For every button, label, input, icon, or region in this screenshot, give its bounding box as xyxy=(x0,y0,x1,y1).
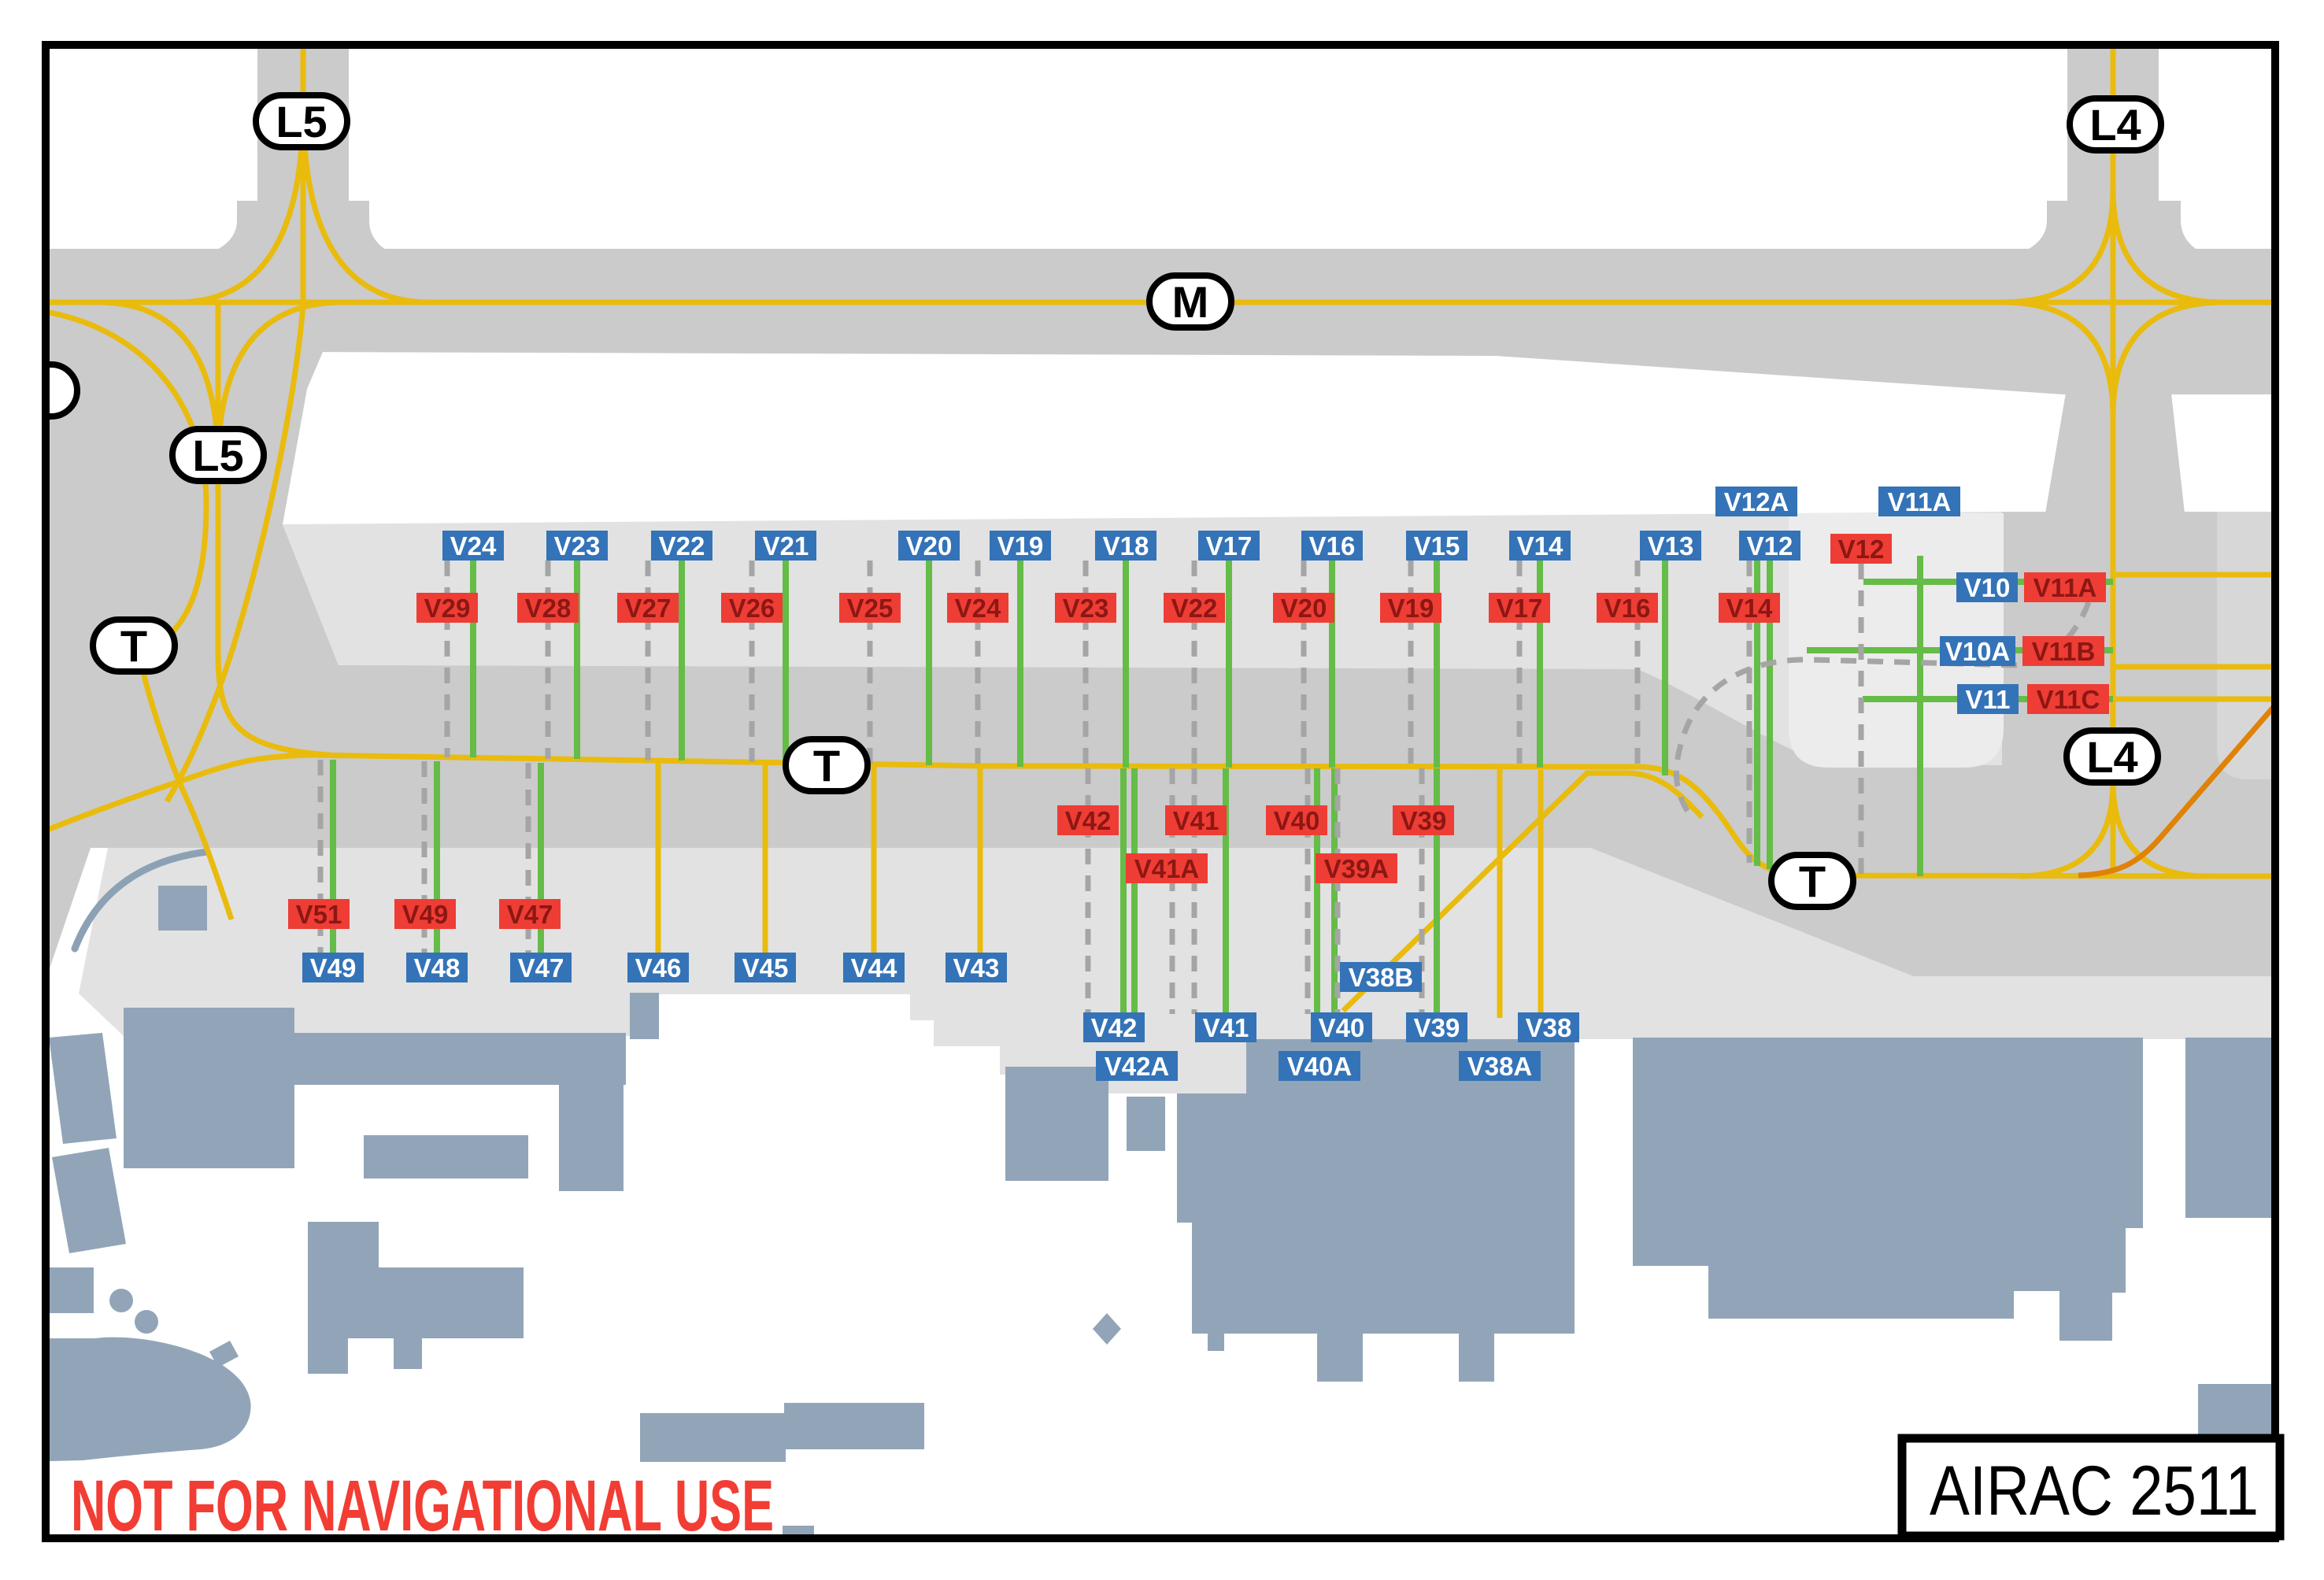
svg-text:V10A: V10A xyxy=(1945,637,2011,666)
svg-text:V13: V13 xyxy=(1648,531,1694,561)
svg-text:V28: V28 xyxy=(525,594,572,623)
svg-text:M: M xyxy=(1172,277,1209,327)
svg-text:V42: V42 xyxy=(1065,806,1112,835)
svg-text:V17: V17 xyxy=(1206,531,1253,561)
svg-text:V11: V11 xyxy=(1966,685,2011,714)
svg-text:V22: V22 xyxy=(659,531,705,561)
svg-text:V24: V24 xyxy=(955,594,1001,623)
svg-text:T: T xyxy=(1799,857,1826,906)
svg-text:V40A: V40A xyxy=(1287,1052,1353,1081)
svg-text:V11C: V11C xyxy=(2037,685,2100,714)
svg-text:V12: V12 xyxy=(1747,531,1793,561)
svg-text:V12A: V12A xyxy=(1724,487,1789,516)
svg-text:V49: V49 xyxy=(402,900,449,929)
svg-text:V43: V43 xyxy=(953,953,1000,982)
svg-text:NOT FOR NAVIGATIONAL USE: NOT FOR NAVIGATIONAL USE xyxy=(71,1466,774,1546)
svg-text:V15: V15 xyxy=(1414,531,1460,561)
svg-text:V16: V16 xyxy=(1604,594,1651,623)
svg-text:V23: V23 xyxy=(554,531,601,561)
svg-text:V39: V39 xyxy=(1401,806,1447,835)
svg-text:V12: V12 xyxy=(1838,535,1885,564)
svg-text:V26: V26 xyxy=(729,594,775,623)
svg-text:V41: V41 xyxy=(1203,1013,1249,1042)
svg-text:V11B: V11B xyxy=(2032,637,2096,666)
svg-text:V41: V41 xyxy=(1173,806,1219,835)
svg-text:V48: V48 xyxy=(414,953,461,982)
svg-text:V11A: V11A xyxy=(1888,487,1952,516)
svg-text:V42A: V42A xyxy=(1105,1052,1170,1081)
svg-text:L4: L4 xyxy=(2086,732,2137,782)
svg-text:AIRAC 2511: AIRAC 2511 xyxy=(1930,1451,2259,1530)
svg-text:V29: V29 xyxy=(424,594,471,623)
svg-text:L5: L5 xyxy=(276,97,327,146)
svg-text:V47: V47 xyxy=(507,900,553,929)
svg-text:V17: V17 xyxy=(1497,594,1543,623)
svg-text:T: T xyxy=(120,621,147,671)
svg-text:V20: V20 xyxy=(1281,594,1327,623)
svg-text:V23: V23 xyxy=(1063,594,1109,623)
svg-text:V14: V14 xyxy=(1517,531,1564,561)
svg-text:V39: V39 xyxy=(1414,1013,1460,1042)
svg-text:V45: V45 xyxy=(742,953,789,982)
svg-text:V39A: V39A xyxy=(1324,854,1390,883)
svg-text:V20: V20 xyxy=(906,531,953,561)
svg-text:V19: V19 xyxy=(997,531,1044,561)
svg-text:V38: V38 xyxy=(1526,1013,1572,1042)
svg-text:V38A: V38A xyxy=(1467,1052,1533,1081)
svg-text:V19: V19 xyxy=(1388,594,1434,623)
svg-text:V21: V21 xyxy=(763,531,809,561)
svg-text:V14: V14 xyxy=(1726,594,1773,623)
svg-text:V47: V47 xyxy=(518,953,564,982)
svg-text:V18: V18 xyxy=(1103,531,1149,561)
svg-text:L4: L4 xyxy=(2089,100,2141,150)
svg-text:V40: V40 xyxy=(1319,1013,1365,1042)
svg-text:V27: V27 xyxy=(625,594,672,623)
svg-text:V16: V16 xyxy=(1309,531,1356,561)
svg-text:V49: V49 xyxy=(310,953,357,982)
svg-text:V24: V24 xyxy=(450,531,497,561)
svg-text:V38B: V38B xyxy=(1349,963,1414,992)
svg-text:V42: V42 xyxy=(1091,1013,1138,1042)
svg-text:V40: V40 xyxy=(1274,806,1320,835)
svg-text:V22: V22 xyxy=(1171,594,1218,623)
svg-text:V51: V51 xyxy=(296,900,342,929)
svg-text:V25: V25 xyxy=(847,594,894,623)
svg-text:V11A: V11A xyxy=(2033,573,2097,602)
svg-text:V46: V46 xyxy=(635,953,682,982)
svg-text:V10: V10 xyxy=(1964,573,2011,602)
svg-text:L5: L5 xyxy=(192,431,243,480)
svg-text:T: T xyxy=(813,741,840,790)
svg-text:V41A: V41A xyxy=(1134,854,1200,883)
svg-text:V44: V44 xyxy=(851,953,897,982)
